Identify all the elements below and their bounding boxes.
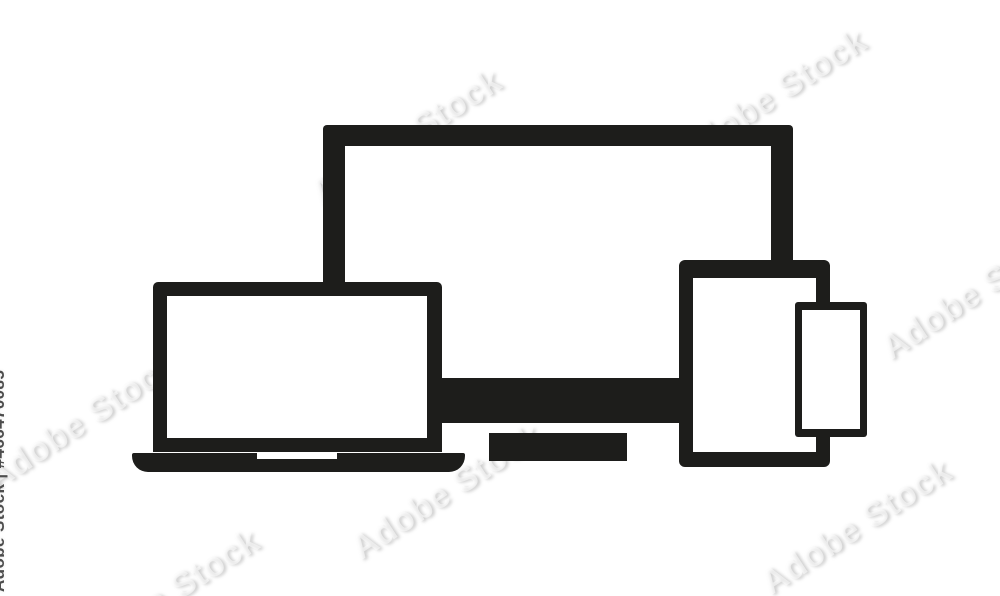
- smartphone-icon: [795, 302, 867, 437]
- smartphone-screen: [802, 310, 860, 429]
- tv-stand-base: [489, 433, 627, 461]
- laptop-screen: [167, 296, 427, 438]
- laptop-hinge-notch: [257, 453, 337, 459]
- diagonal-watermark: Adobe Stock: [63, 523, 265, 596]
- diagonal-watermark: Adobe Stock: [755, 453, 957, 596]
- watermark-caption: Adobe Stock | #466470085: [0, 370, 9, 592]
- diagonal-watermark: Adobe Stock: [875, 218, 1000, 366]
- laptop-icon: [153, 282, 442, 452]
- stock-image-canvas: Adobe Stock Adobe Stock Adobe Stock Adob…: [0, 0, 1000, 596]
- laptop-base: [132, 453, 465, 472]
